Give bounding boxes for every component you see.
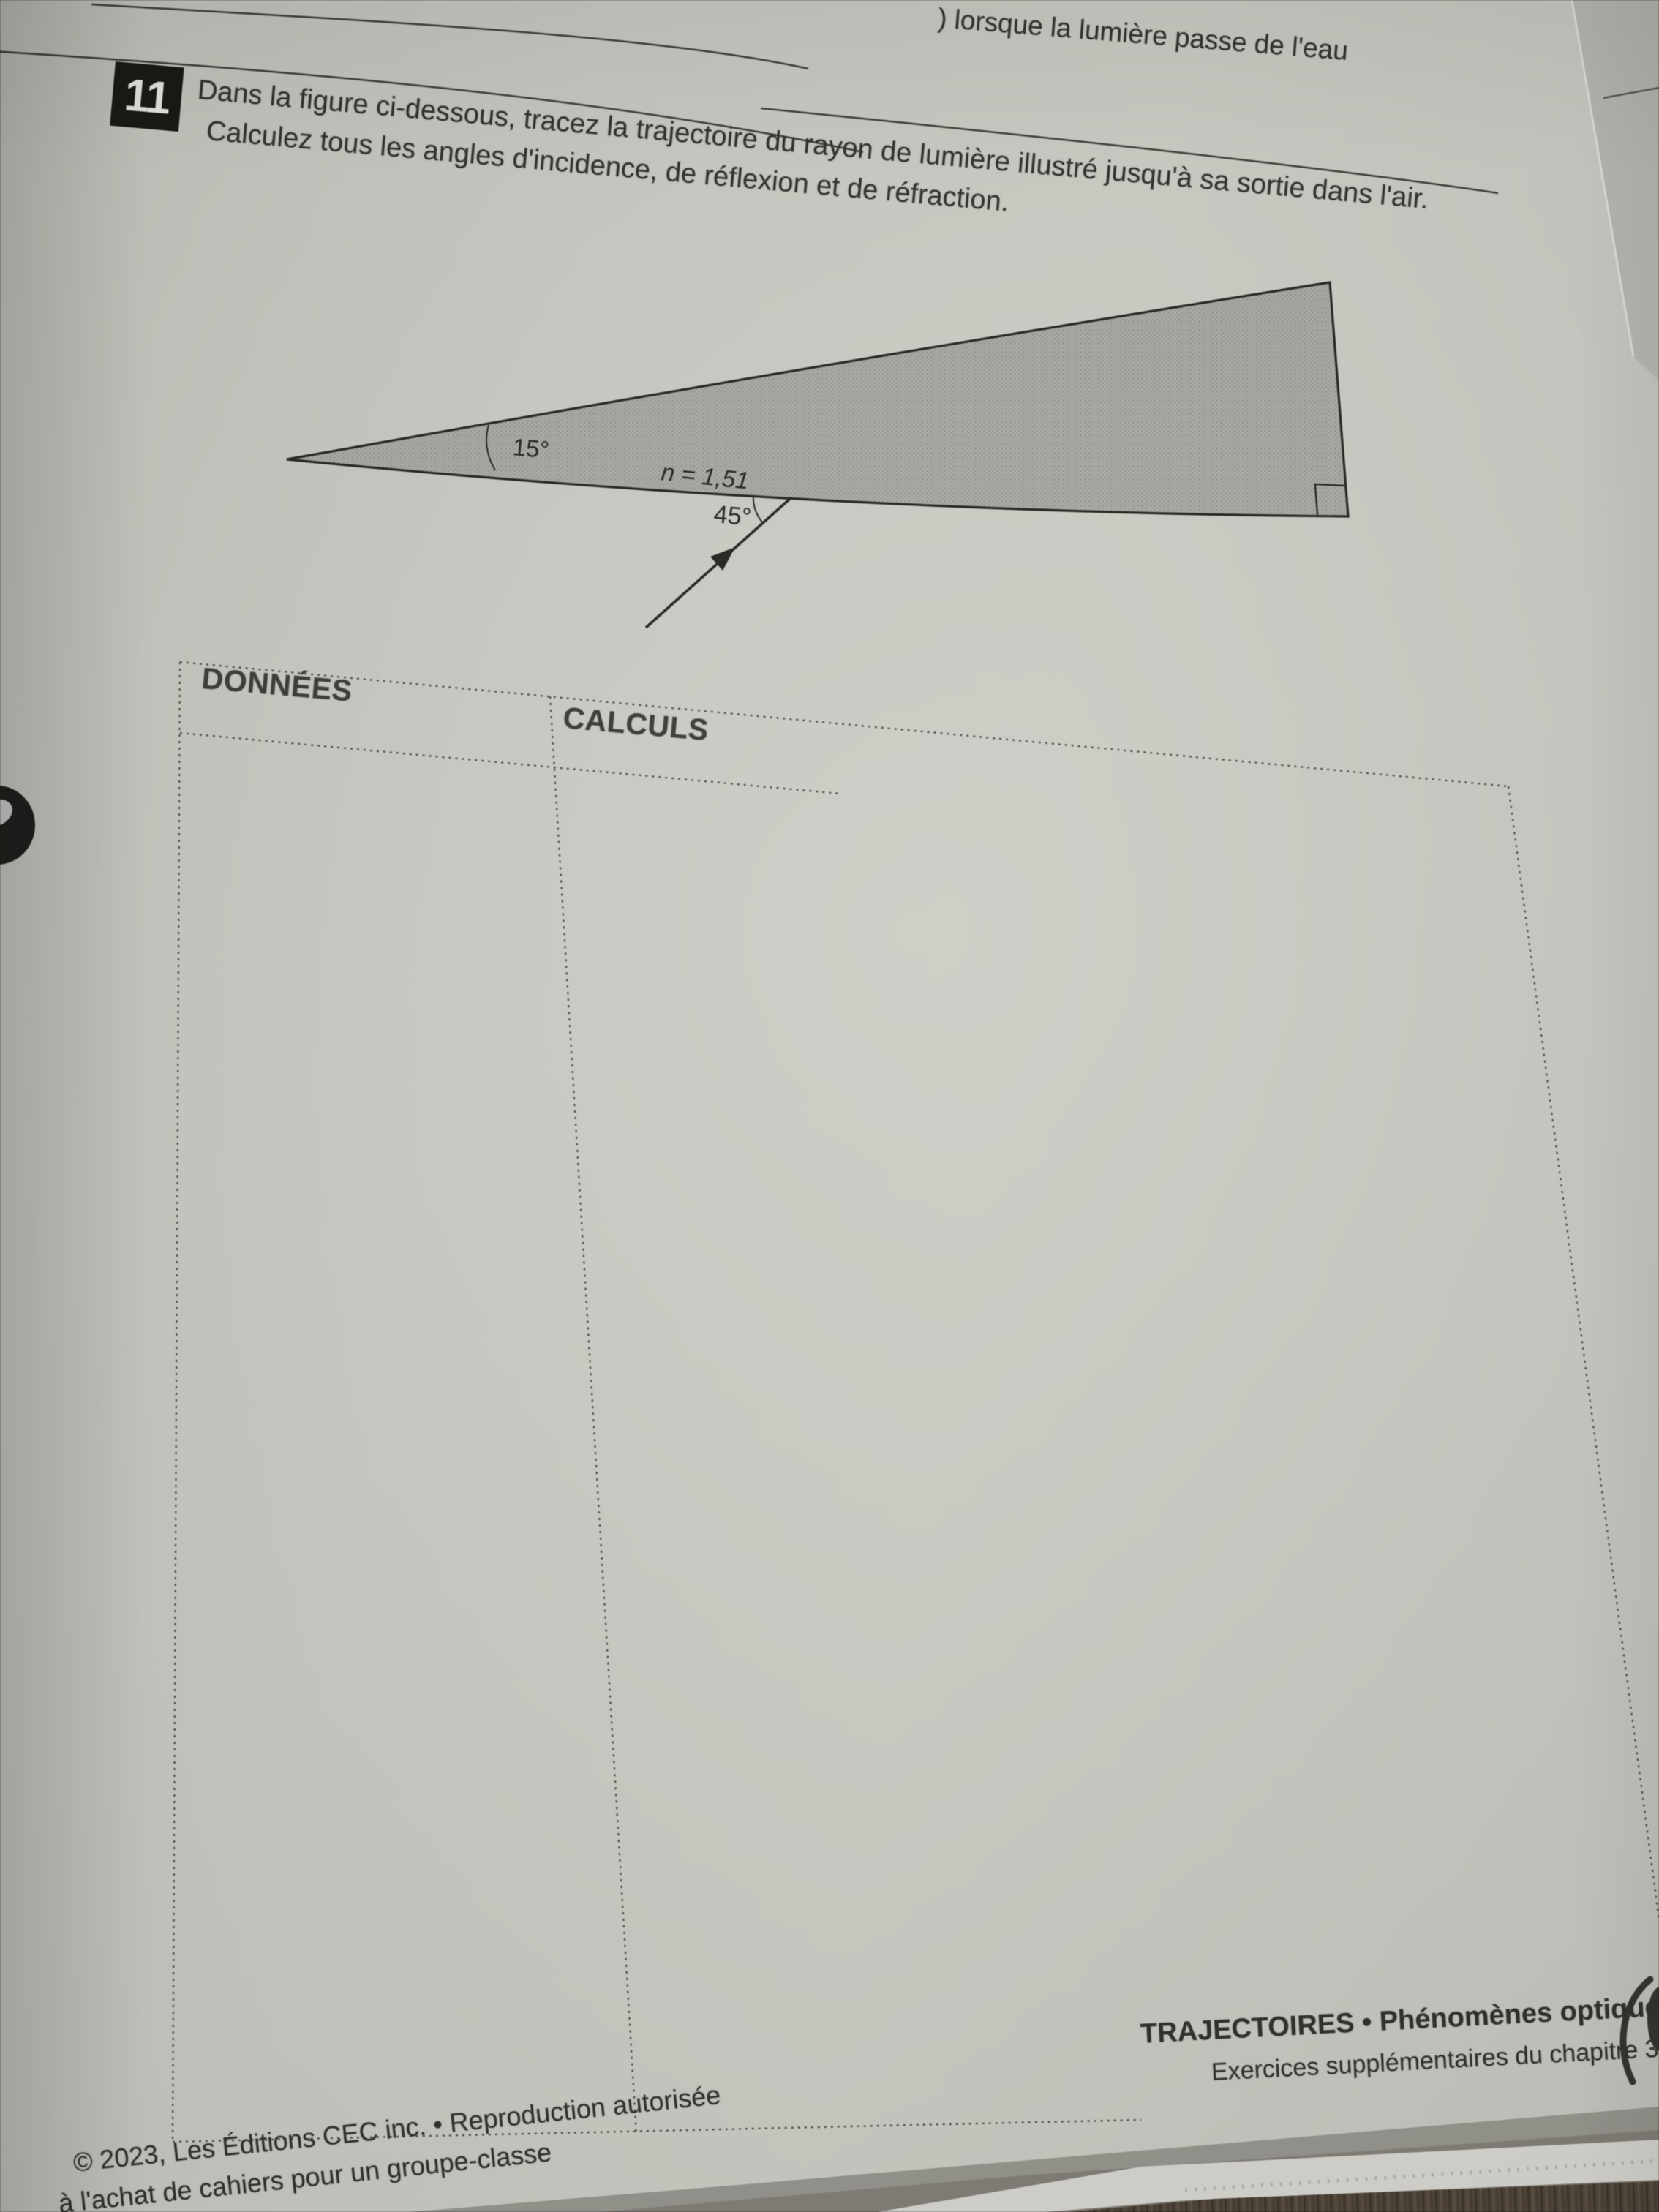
incidence-angle-arc [753, 495, 763, 523]
page-artwork: 15° n = 1,51 45° [0, 0, 1659, 2212]
table-left-border [173, 662, 180, 2142]
underlying-page-top-right [1572, 0, 1659, 380]
exercise-number-badge: 11 [110, 61, 184, 132]
table-header-underline [180, 733, 840, 794]
exercise-number: 11 [122, 69, 172, 124]
workbook-page-photo: 15° n = 1,51 45° [0, 0, 1659, 2212]
table-top-border [180, 662, 1508, 786]
work-table-borders [173, 662, 1659, 2142]
binder-hole [0, 786, 35, 865]
table-column-divider [550, 696, 636, 2134]
apex-angle-label: 15° [511, 433, 550, 463]
table-right-border [1508, 786, 1659, 1919]
prism-figure: 15° n = 1,51 45° [287, 282, 1348, 628]
ruled-line-1 [91, 4, 808, 69]
glass-prism-shape [287, 282, 1348, 516]
incidence-angle-label: 45° [712, 500, 753, 531]
